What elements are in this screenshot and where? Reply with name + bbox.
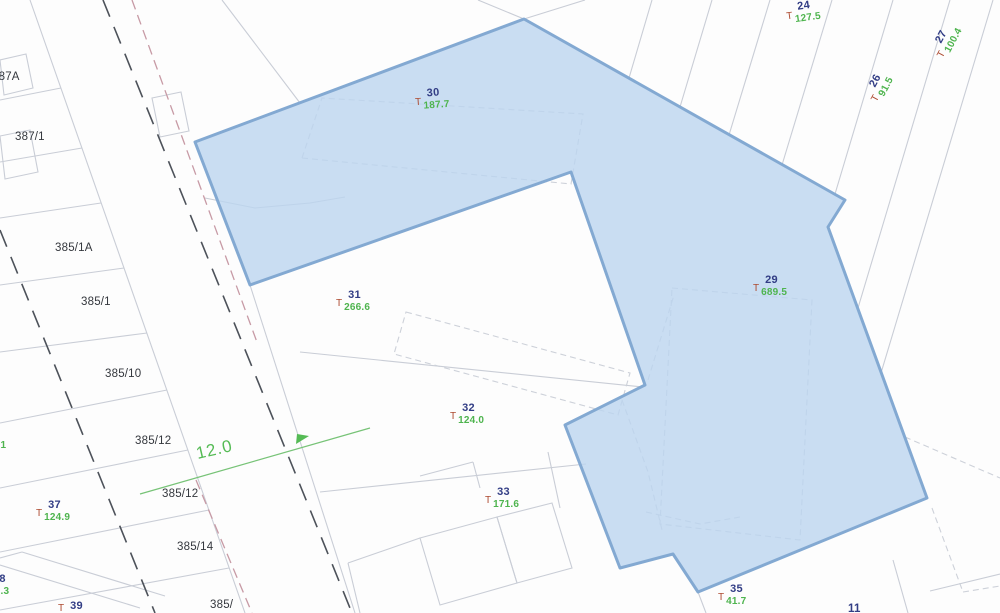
parcel-label-385-10: 385/10 xyxy=(105,368,141,380)
t-label-35: T 3541.7 xyxy=(718,583,746,607)
t-label-30: T 30187.7 xyxy=(414,86,450,112)
t-number: 32 xyxy=(458,402,484,414)
t-prefix: T xyxy=(753,279,759,294)
cadastral-map[interactable]: 387A 387/1 385/1A 385/1 385/10 385/12 38… xyxy=(0,0,1000,613)
t-number: 39 xyxy=(66,600,83,612)
t-area: 124.0 xyxy=(458,415,484,426)
t-prefix: T xyxy=(718,588,724,603)
parcel-label-387-1: 387/1 xyxy=(15,131,45,143)
t-number: 35 xyxy=(726,583,746,595)
parcel-label-385-12: 385/12 xyxy=(135,435,171,447)
t-area: 187.7 xyxy=(423,99,450,112)
parcel-label-387a: 387A xyxy=(0,71,20,83)
t-label-38: 3853.3 xyxy=(0,573,9,597)
parcel-label-385-1a: 385/1A xyxy=(55,242,93,254)
t-number: 33 xyxy=(493,486,519,498)
t-prefix: T xyxy=(58,599,64,613)
t-number: 30 xyxy=(422,86,449,100)
t-prefix: T xyxy=(450,407,456,422)
t-label-32: T 32124.0 xyxy=(450,402,484,426)
t-prefix: T xyxy=(36,504,42,519)
t-number: 37 xyxy=(44,499,70,511)
t-number: 31 xyxy=(344,289,370,301)
pink-boundary-line xyxy=(132,0,258,613)
t-label-3: 390.1 xyxy=(0,427,6,451)
parcel-label-385-1: 385/1 xyxy=(81,296,111,308)
t-prefix: T xyxy=(785,6,793,22)
t-label-33: T 33171.6 xyxy=(485,486,519,510)
t-number: 38 xyxy=(0,573,9,585)
t-area: 53.3 xyxy=(0,586,9,597)
t-label-31: T 31266.6 xyxy=(336,289,370,313)
parcel-label-385-x: 385/ xyxy=(210,599,233,611)
t-area: 90.1 xyxy=(0,440,6,451)
t-prefix: T xyxy=(485,491,491,506)
t-area: 124.9 xyxy=(44,512,70,523)
highlighted-parcel-region[interactable] xyxy=(195,19,927,592)
t-prefix: T xyxy=(336,294,342,309)
parcel-label-385-12b: 385/12 xyxy=(162,488,198,500)
dimension-line xyxy=(140,428,370,494)
t-label-29: T 29689.5 xyxy=(753,274,787,298)
t-label-37: T 37124.9 xyxy=(36,499,70,523)
t-label-39: T 39 xyxy=(58,599,83,613)
t-number: 29 xyxy=(761,274,787,286)
t-prefix: T xyxy=(415,92,422,107)
t-area: 266.6 xyxy=(344,302,370,313)
t-area: 41.7 xyxy=(726,596,746,607)
parcel-label-11: 11 xyxy=(848,603,861,613)
parcel-label-385-14: 385/14 xyxy=(177,541,213,553)
t-area: 689.5 xyxy=(761,287,787,298)
t-number: 3 xyxy=(0,427,6,439)
map-canvas xyxy=(0,0,1000,613)
t-area: 171.6 xyxy=(493,499,519,510)
